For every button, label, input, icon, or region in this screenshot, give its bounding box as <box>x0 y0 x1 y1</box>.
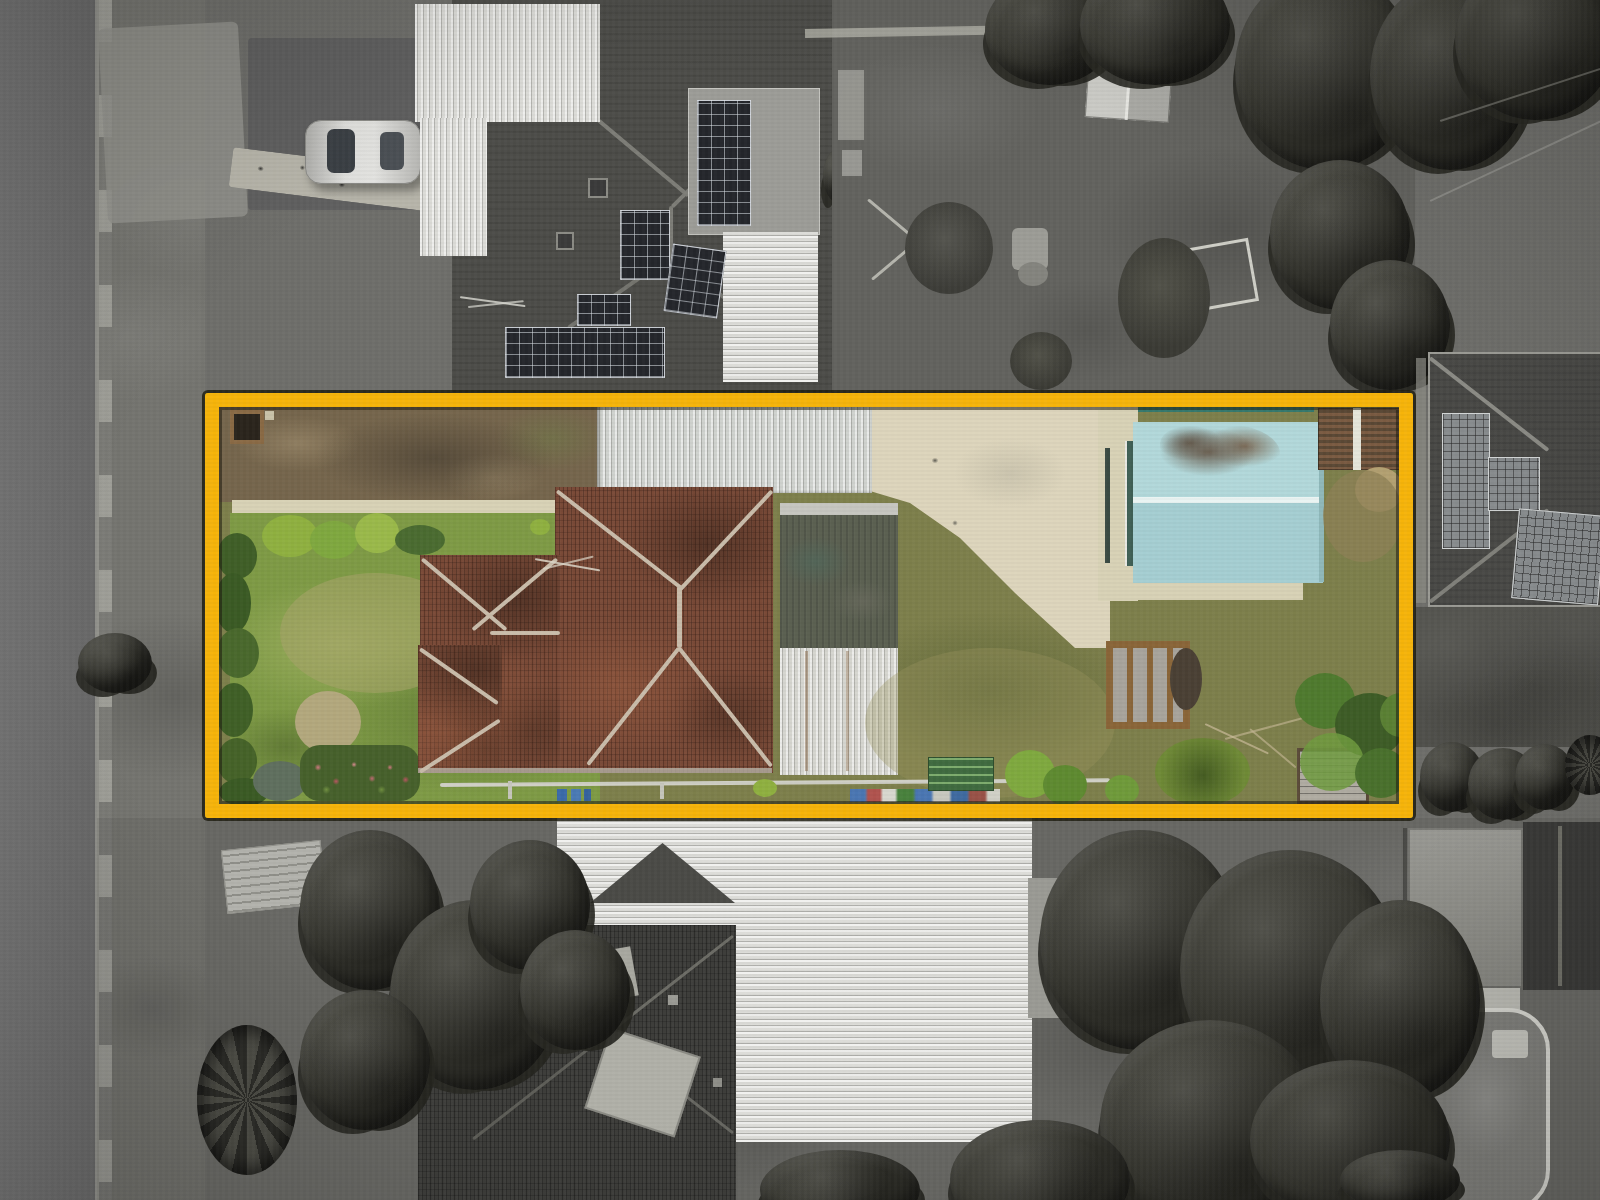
palm-tree <box>197 1025 297 1175</box>
road <box>0 0 97 1200</box>
boundary-highlight <box>205 393 1413 818</box>
roof-vent <box>713 1078 722 1087</box>
solar-array <box>1488 457 1540 511</box>
white-roof-section <box>723 232 818 382</box>
dry-bush <box>1010 332 1072 390</box>
solar-array <box>1511 508 1600 605</box>
yard-clutter <box>842 150 862 176</box>
chimney <box>588 178 608 198</box>
yard-clutter <box>838 70 864 140</box>
white-roof-section <box>415 4 600 122</box>
solar-array <box>697 100 751 226</box>
footpath-pad <box>98 21 248 223</box>
car-windshield <box>327 129 355 173</box>
street-tree <box>78 633 152 693</box>
pool-furniture <box>1492 1030 1528 1058</box>
yard-dark-right <box>1415 607 1600 747</box>
tree-canopy <box>300 990 430 1130</box>
tree-canopy <box>520 930 630 1050</box>
solar-array <box>505 327 665 378</box>
solar-array <box>577 294 631 326</box>
roof-vent <box>668 995 678 1005</box>
dry-bush <box>905 202 993 294</box>
white-roof-strip <box>420 118 487 256</box>
dry-bush <box>1118 238 1210 358</box>
solar-array <box>664 244 727 319</box>
aerial-photo <box>0 0 1600 1200</box>
garden-object <box>1018 262 1048 286</box>
side-fence-strip <box>1416 358 1426 603</box>
solar-array <box>620 210 670 280</box>
gable-ridge <box>1558 826 1562 986</box>
chimney <box>556 232 574 250</box>
solar-array <box>1442 413 1490 549</box>
car-rear-window <box>380 132 404 170</box>
